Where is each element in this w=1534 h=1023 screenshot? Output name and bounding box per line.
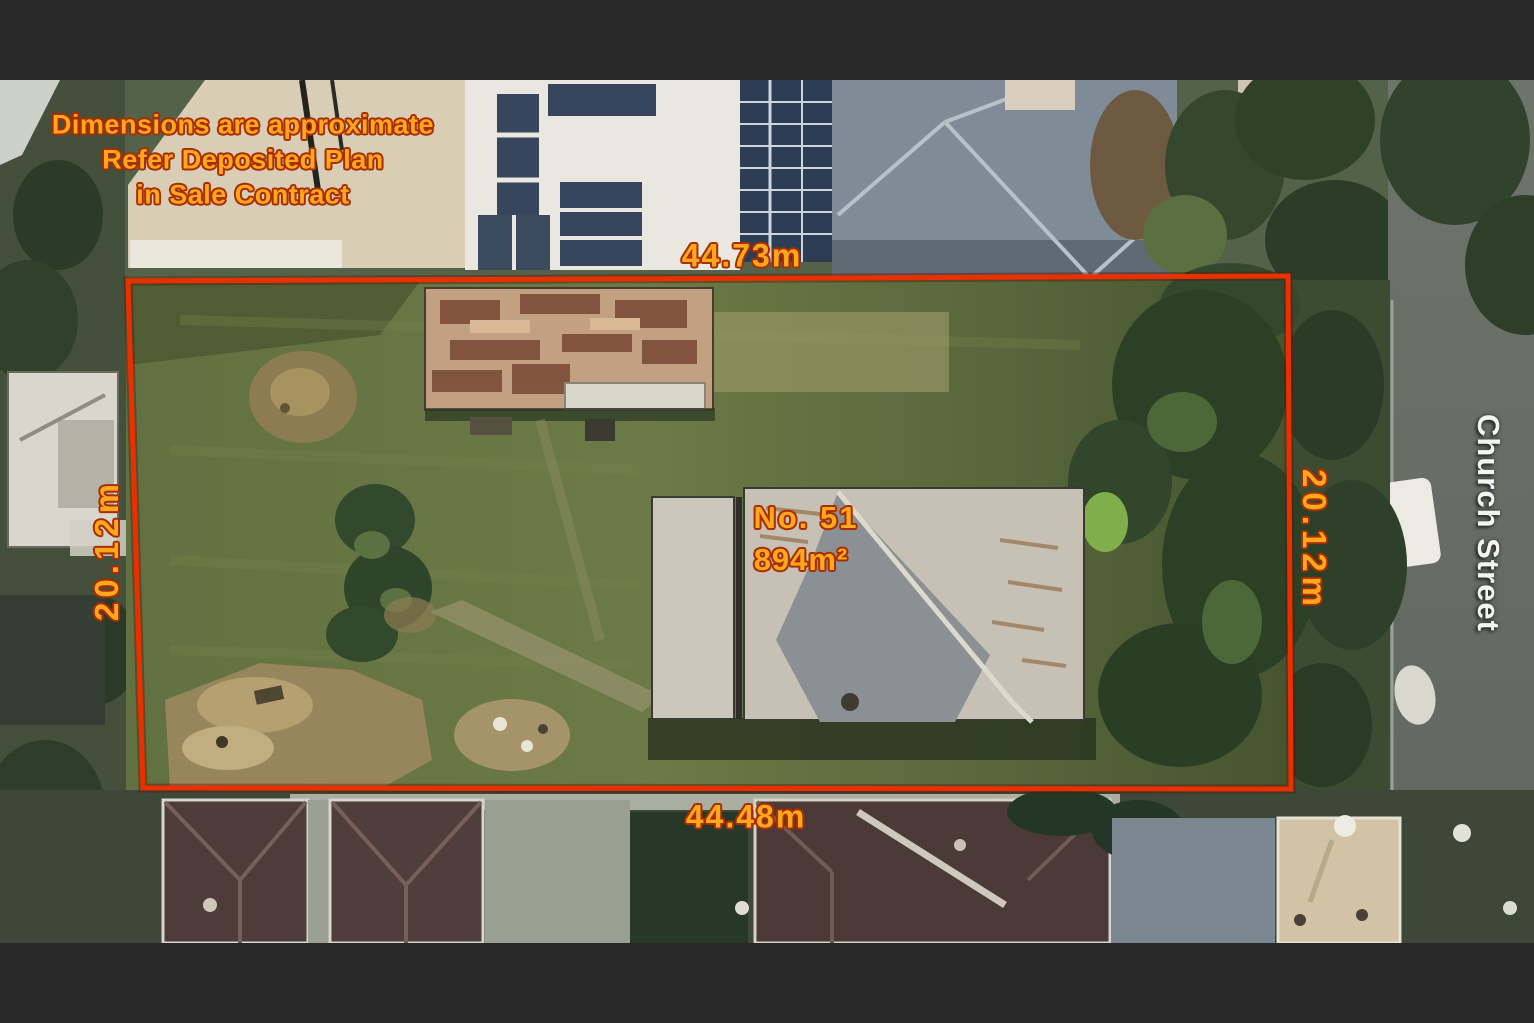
concrete-pad bbox=[1278, 818, 1400, 943]
dimension-right: 20.12m bbox=[1295, 469, 1333, 611]
dimension-left: 20.12m bbox=[88, 479, 126, 621]
main-house bbox=[648, 488, 1096, 760]
brown-roof-house-1 bbox=[163, 800, 308, 943]
driveway bbox=[1112, 818, 1275, 943]
street-name: Church Street bbox=[1470, 414, 1506, 632]
brown-roof-house-2 bbox=[330, 800, 483, 943]
lot-area: 894m² bbox=[754, 542, 849, 578]
property-lot bbox=[126, 263, 1318, 790]
disclaimer-line-1: Dimensions are approximate bbox=[52, 108, 434, 143]
dimension-top: 44.73m bbox=[682, 238, 803, 275]
lot-number: No. 51 bbox=[753, 500, 858, 536]
dirt-circle bbox=[249, 351, 357, 443]
dimension-bottom: 44.48m bbox=[686, 799, 807, 836]
disclaimer-line-3: in Sale Contract bbox=[52, 178, 434, 213]
worn-grass-strip bbox=[714, 312, 949, 392]
listing-image: Dimensions are approximate Refer Deposit… bbox=[0, 0, 1534, 1023]
disclaimer-note: Dimensions are approximate Refer Deposit… bbox=[52, 108, 434, 213]
disclaimer-line-2: Refer Deposited Plan bbox=[52, 143, 434, 178]
letterbox-top bbox=[0, 0, 1534, 80]
carport-roof bbox=[652, 497, 734, 719]
solar-panel-roof bbox=[740, 80, 832, 262]
letterbox-bottom bbox=[0, 943, 1534, 1023]
rusty-shed bbox=[425, 288, 715, 441]
